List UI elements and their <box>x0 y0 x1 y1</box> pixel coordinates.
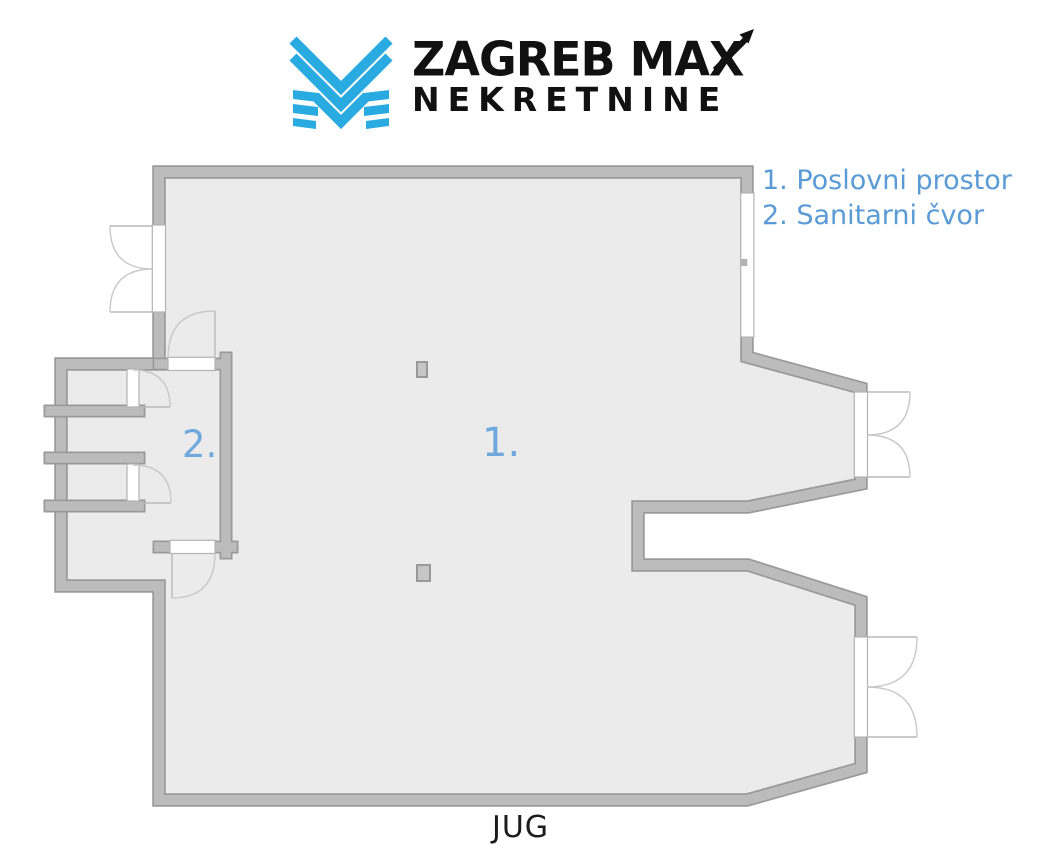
pillar <box>417 565 430 581</box>
stall-door-frame-2 <box>127 464 139 501</box>
page: ZAGREB MAX NEKRETNINE 1. Poslovni prosto… <box>0 0 1047 853</box>
window <box>741 193 754 337</box>
door-arc <box>110 226 153 269</box>
sanitary-door-frame-north <box>168 357 215 370</box>
entrance-door-frame-west <box>152 225 165 312</box>
sanitary-door-frame-south <box>170 540 215 553</box>
door-arc <box>867 687 917 737</box>
door-arc <box>867 435 910 477</box>
orientation-label-south: JUG <box>492 810 549 845</box>
door-arc <box>867 637 917 687</box>
pillar <box>417 362 427 377</box>
floorplan-canvas <box>0 0 1047 853</box>
stall-door-frame-1 <box>127 369 139 407</box>
room-label-poslovni-prostor: 1. <box>482 420 520 466</box>
room-label-sanitarni-cvor: 2. <box>182 423 217 466</box>
entrance-door-frame-east-upper <box>854 392 867 477</box>
door-arc <box>110 269 153 312</box>
window-mullion <box>741 259 748 266</box>
door-arc <box>867 392 910 435</box>
entrance-door-frame-east-lower <box>854 637 867 737</box>
